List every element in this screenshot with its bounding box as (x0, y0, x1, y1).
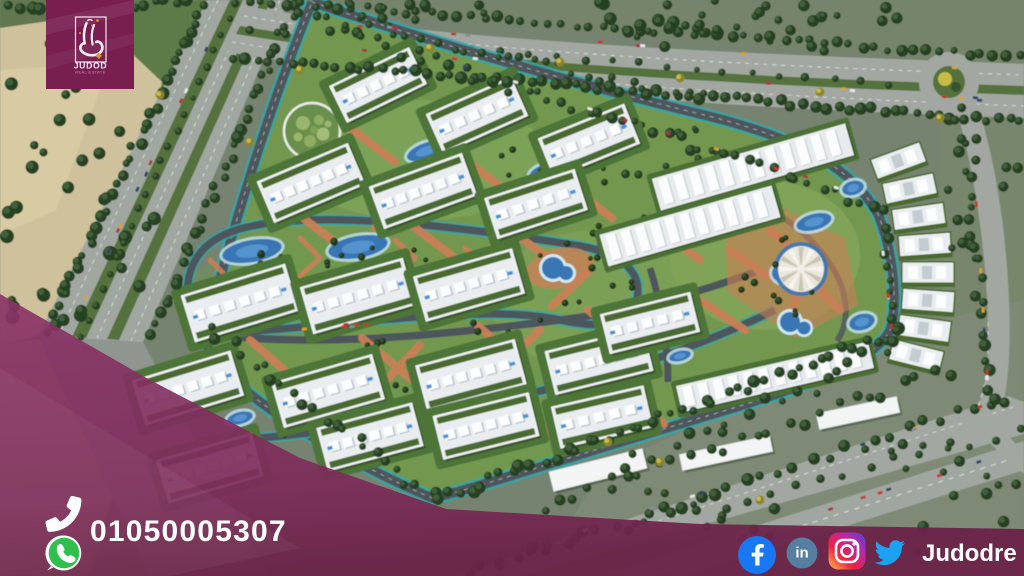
svg-text:Judodre: Judodre (922, 540, 1017, 567)
svg-text:JUDOD: JUDOD (74, 61, 108, 71)
svg-text:01050005307: 01050005307 (90, 515, 287, 548)
svg-text:REAL ESTATE: REAL ESTATE (75, 71, 106, 75)
svg-text:in: in (795, 545, 808, 562)
